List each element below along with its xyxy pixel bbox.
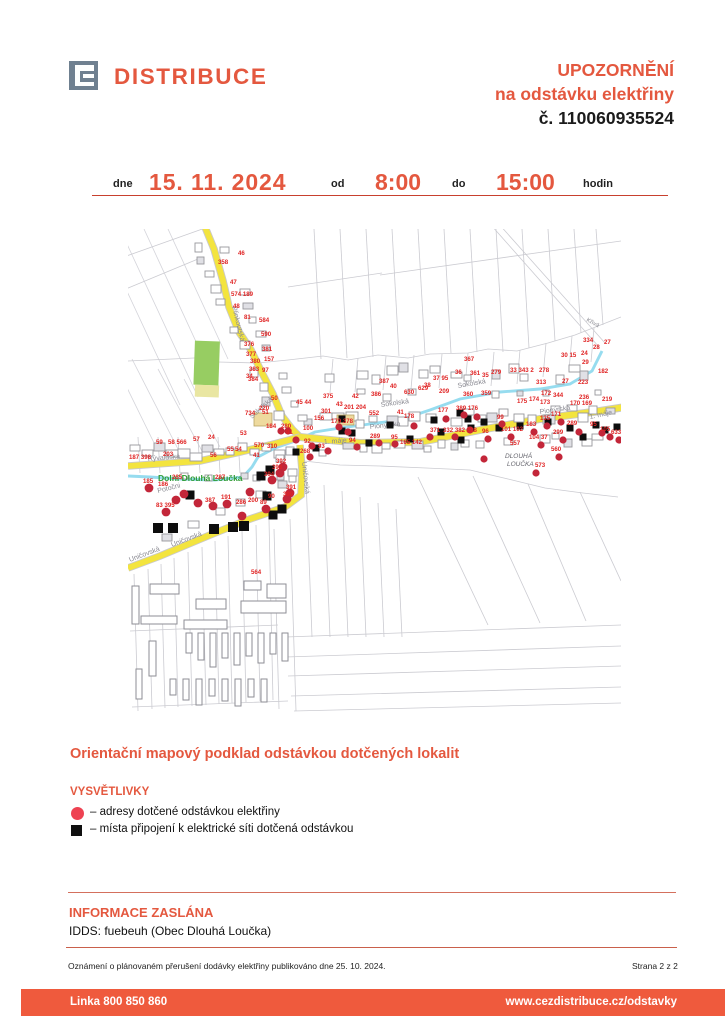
svg-text:265: 265 (172, 474, 183, 481)
svg-text:310: 310 (267, 443, 278, 450)
svg-text:33 343 2: 33 343 2 (510, 367, 534, 374)
svg-text:313: 313 (536, 379, 547, 386)
svg-text:384: 384 (248, 376, 259, 383)
svg-text:DLOUHÁ: DLOUHÁ (505, 451, 533, 460)
svg-text:27: 27 (562, 378, 569, 385)
svg-text:174: 174 (529, 396, 540, 403)
svg-text:380: 380 (250, 358, 261, 365)
svg-text:58 566: 58 566 (168, 439, 187, 446)
svg-text:37 95: 37 95 (433, 375, 449, 382)
svg-text:361: 361 (470, 370, 481, 377)
svg-text:90: 90 (268, 493, 275, 500)
svg-text:299: 299 (553, 429, 564, 436)
svg-text:57: 57 (193, 436, 200, 443)
svg-text:286: 286 (236, 499, 247, 506)
svg-text:183: 183 (526, 421, 537, 428)
svg-text:43: 43 (336, 401, 343, 408)
svg-text:135: 135 (540, 415, 551, 422)
svg-text:393: 393 (272, 464, 283, 471)
svg-text:383: 383 (249, 366, 260, 373)
svg-text:386: 386 (371, 391, 382, 398)
svg-text:268: 268 (300, 448, 311, 455)
svg-text:36: 36 (455, 369, 462, 376)
svg-text:94: 94 (349, 437, 356, 444)
svg-text:560: 560 (551, 446, 562, 453)
svg-text:55: 55 (227, 446, 234, 453)
svg-text:287: 287 (215, 474, 226, 481)
svg-text:179 378: 179 378 (331, 418, 354, 425)
svg-text:334: 334 (583, 337, 594, 344)
svg-text:633: 633 (611, 429, 621, 436)
svg-text:83 395: 83 395 (156, 502, 175, 509)
svg-text:56: 56 (210, 452, 217, 459)
svg-text:95: 95 (590, 421, 597, 428)
svg-text:175: 175 (517, 398, 528, 405)
svg-text:99: 99 (497, 414, 504, 421)
svg-text:96: 96 (482, 428, 489, 435)
svg-text:186: 186 (158, 481, 169, 488)
svg-text:377: 377 (246, 351, 257, 358)
svg-text:95: 95 (391, 434, 398, 441)
svg-text:173: 173 (540, 399, 551, 406)
svg-text:223: 223 (578, 379, 589, 386)
svg-text:358: 358 (218, 259, 229, 266)
svg-text:30 15: 30 15 (561, 352, 577, 359)
svg-text:552: 552 (369, 410, 380, 417)
svg-text:24: 24 (208, 434, 215, 441)
svg-text:344: 344 (553, 392, 564, 399)
svg-text:387: 387 (379, 378, 390, 385)
svg-text:184: 184 (266, 423, 277, 430)
svg-text:170 169: 170 169 (570, 400, 593, 407)
svg-text:367: 367 (464, 356, 475, 363)
svg-text:29: 29 (582, 359, 589, 366)
svg-text:38: 38 (424, 382, 431, 389)
svg-text:389 176: 389 176 (456, 405, 479, 412)
svg-text:371: 371 (430, 427, 441, 434)
svg-text:156: 156 (314, 415, 325, 422)
svg-text:191: 191 (221, 494, 232, 501)
svg-text:24: 24 (581, 350, 588, 357)
svg-text:35: 35 (482, 372, 489, 379)
svg-text:LOUČKA: LOUČKA (507, 459, 534, 468)
svg-text:50: 50 (271, 395, 278, 402)
svg-text:27: 27 (604, 339, 611, 346)
svg-text:81: 81 (244, 314, 251, 321)
svg-text:165 142: 165 142 (400, 439, 423, 446)
svg-text:573: 573 (535, 462, 546, 469)
svg-text:394: 394 (264, 471, 275, 478)
svg-text:630: 630 (404, 389, 415, 396)
svg-text:93: 93 (318, 443, 325, 450)
svg-text:101 102: 101 102 (501, 426, 524, 433)
svg-text:387: 387 (205, 497, 216, 504)
svg-text:97: 97 (262, 367, 269, 374)
svg-text:201 204: 201 204 (344, 404, 367, 411)
svg-text:203: 203 (163, 451, 174, 458)
svg-text:289: 289 (567, 420, 578, 427)
svg-text:279: 279 (491, 369, 502, 376)
svg-text:301: 301 (321, 408, 332, 415)
svg-text:574 189: 574 189 (231, 291, 254, 298)
svg-text:91: 91 (286, 429, 293, 436)
svg-text:557: 557 (510, 440, 521, 447)
svg-text:289: 289 (370, 433, 381, 440)
svg-text:332 382 228: 332 382 228 (443, 427, 477, 434)
svg-text:280: 280 (281, 423, 292, 430)
svg-text:40: 40 (390, 383, 397, 390)
svg-text:54: 54 (235, 446, 242, 453)
svg-text:171: 171 (551, 411, 562, 418)
svg-text:105: 105 (600, 426, 611, 433)
svg-text:182: 182 (598, 368, 609, 375)
svg-text:375: 375 (323, 393, 334, 400)
svg-text:89: 89 (260, 499, 267, 506)
svg-text:391: 391 (286, 484, 297, 491)
svg-text:200: 200 (248, 497, 259, 504)
svg-text:209: 209 (439, 388, 450, 395)
svg-text:584: 584 (259, 317, 270, 324)
svg-text:100: 100 (303, 425, 314, 432)
svg-text:564: 564 (251, 569, 262, 576)
svg-text:185: 185 (143, 478, 154, 485)
svg-text:92: 92 (304, 438, 311, 445)
svg-text:28: 28 (593, 344, 600, 351)
svg-text:53: 53 (240, 430, 247, 437)
svg-text:59: 59 (156, 439, 163, 446)
svg-text:219: 219 (602, 396, 613, 403)
svg-text:46: 46 (238, 250, 245, 257)
svg-text:570: 570 (254, 442, 265, 449)
svg-text:734: 734 (245, 410, 256, 417)
svg-text:381: 381 (262, 346, 273, 353)
svg-text:48: 48 (233, 303, 240, 310)
svg-text:376: 376 (244, 341, 255, 348)
svg-text:51: 51 (262, 409, 269, 416)
svg-text:360: 360 (463, 391, 474, 398)
svg-text:178: 178 (404, 413, 415, 420)
svg-text:45 44: 45 44 (296, 399, 312, 406)
svg-text:157: 157 (264, 356, 275, 363)
svg-text:177: 177 (438, 407, 449, 414)
svg-text:42: 42 (352, 393, 359, 400)
svg-text:Dolní Dlouhá Loučka: Dolní Dlouhá Loučka (158, 473, 243, 483)
svg-text:187 398: 187 398 (129, 454, 152, 461)
svg-text:172: 172 (541, 390, 552, 397)
svg-text:104 37: 104 37 (529, 434, 548, 441)
svg-text:41: 41 (253, 452, 260, 459)
svg-text:359: 359 (481, 390, 492, 397)
svg-text:278: 278 (539, 367, 550, 374)
svg-text:590: 590 (261, 331, 272, 338)
svg-text:47: 47 (230, 279, 237, 286)
svg-text:390: 390 (283, 491, 294, 498)
